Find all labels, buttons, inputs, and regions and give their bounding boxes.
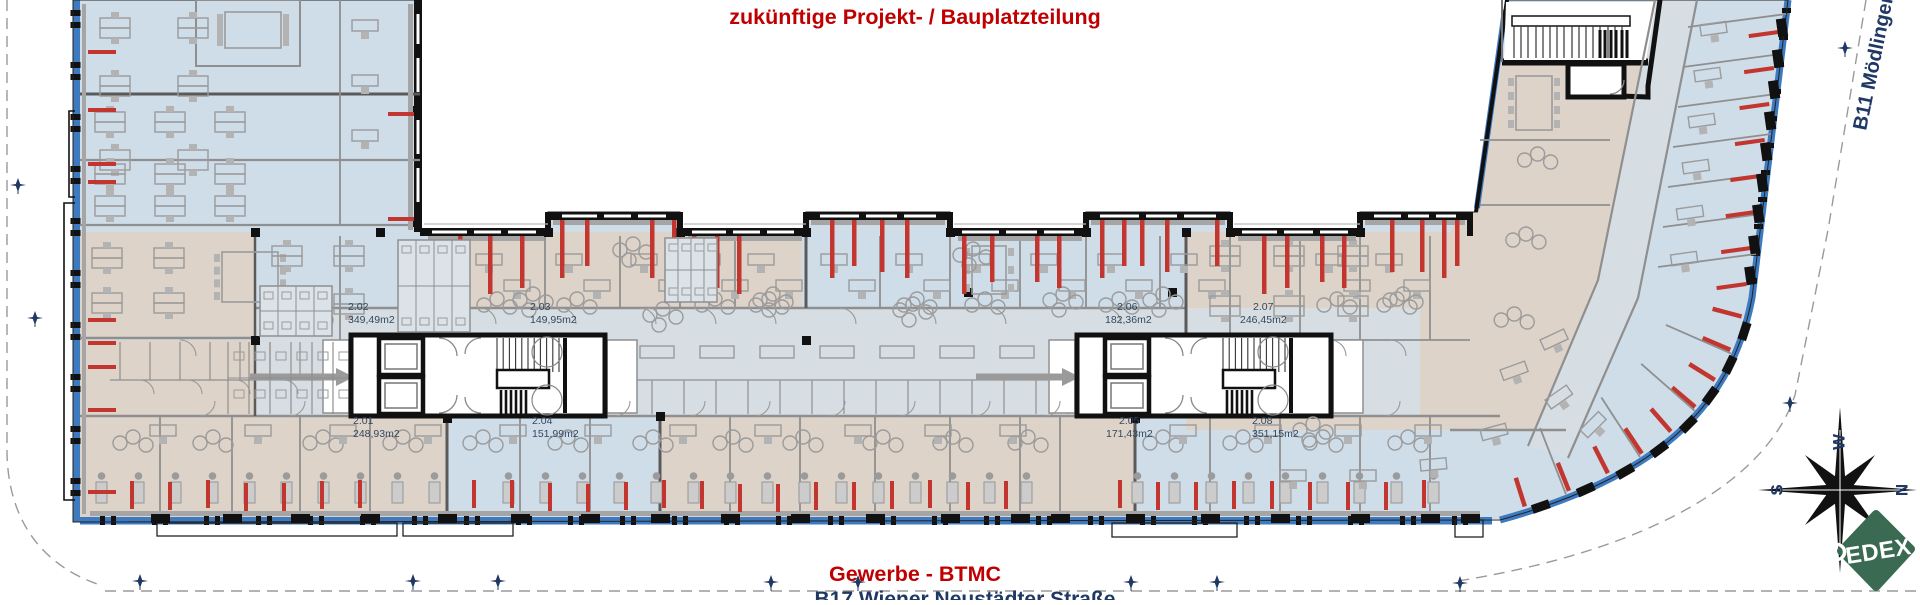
- svg-text:N: N: [1892, 484, 1911, 496]
- svg-text:182,36m2: 182,36m2: [1105, 314, 1152, 326]
- svg-text:2.06: 2.06: [1117, 301, 1138, 313]
- svg-text:S: S: [1767, 484, 1786, 495]
- svg-text:B11 Mödlinger Straße: B11 Mödlinger Straße: [1849, 0, 1911, 132]
- svg-text:171,43m2: 171,43m2: [1106, 428, 1153, 440]
- svg-text:2.04: 2.04: [532, 415, 553, 427]
- svg-text:2.07: 2.07: [1253, 301, 1274, 313]
- svg-text:2.02: 2.02: [348, 301, 369, 313]
- svg-text:zukünftige Projekt- / Bauplatz: zukünftige Projekt- / Bauplatzteilung: [729, 5, 1100, 29]
- svg-text:149,95m2: 149,95m2: [530, 314, 577, 326]
- svg-text:2.05: 2.05: [1119, 415, 1140, 427]
- svg-text:151,99m2: 151,99m2: [532, 428, 579, 440]
- svg-text:2.03: 2.03: [530, 301, 551, 313]
- svg-text:2.08: 2.08: [1252, 415, 1273, 427]
- svg-text:W: W: [1829, 433, 1848, 450]
- svg-text:349,49m2: 349,49m2: [348, 314, 395, 326]
- svg-text:Gewerbe - BTMC: Gewerbe - BTMC: [829, 562, 1001, 586]
- svg-text:2.01: 2.01: [353, 415, 374, 427]
- svg-text:B17 Wiener Neustädter Straße: B17 Wiener Neustädter Straße: [815, 588, 1116, 600]
- svg-text:351,15m2: 351,15m2: [1252, 428, 1299, 440]
- svg-text:248,93m2: 248,93m2: [353, 428, 400, 440]
- svg-text:246,45m2: 246,45m2: [1240, 314, 1287, 326]
